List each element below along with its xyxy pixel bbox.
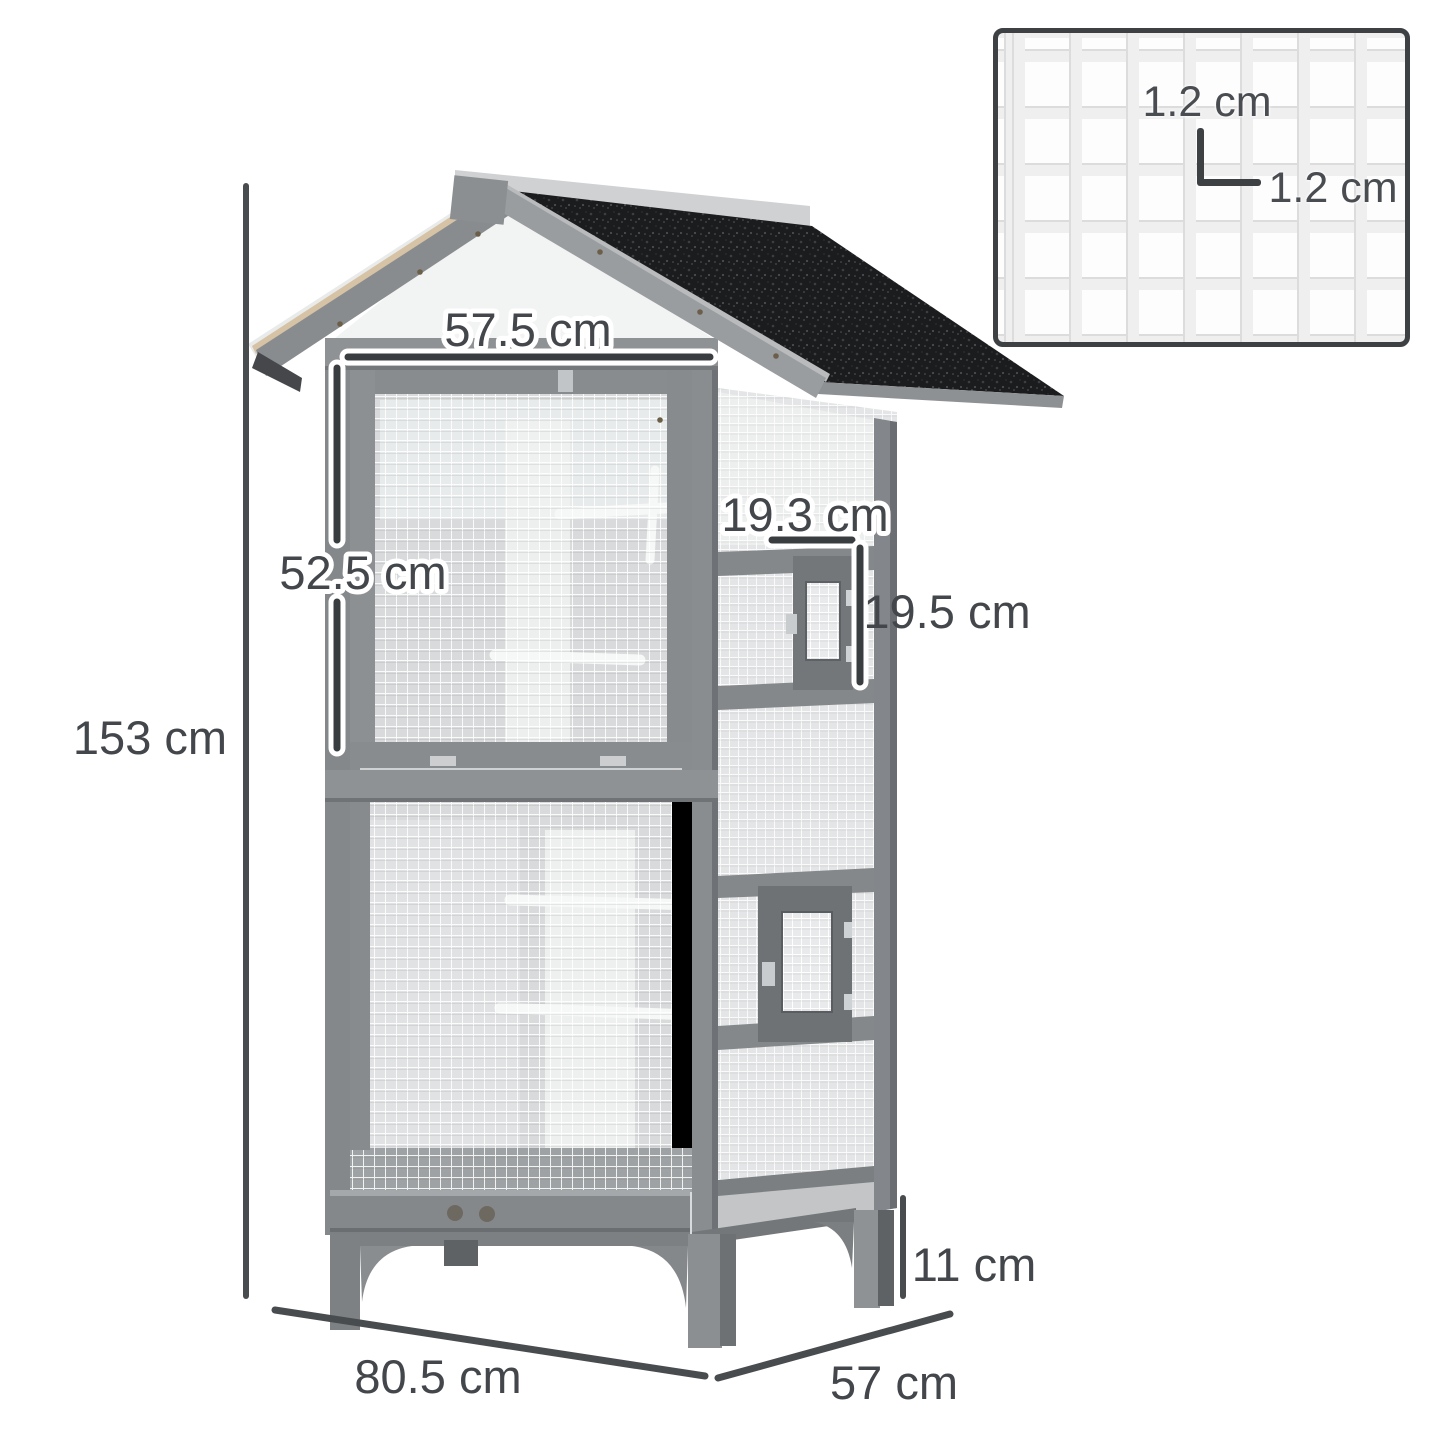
dim-label-side-door-height: 19.5 cm [863,585,1030,638]
dim-label-front-door-height: 52.5 cm [279,546,446,599]
roof-peak-block [450,175,508,224]
leg-back-right [854,1210,880,1308]
tray-top-edge [330,1190,690,1196]
tray-knob [479,1206,495,1222]
mesh-cell-height-tick [1197,128,1204,184]
top-rail-shadow [325,366,718,370]
lower-left-stile [350,802,370,1150]
leg-back-right-side [878,1210,894,1306]
product-dimension-diagram: 57.5 cm 52.5 cm 19.3 cm 19.5 cm 153 cm 1… [0,0,1445,1445]
middle-rail-shadow [325,798,718,802]
door-latch [786,614,797,634]
side-door-lower [758,886,852,1042]
pullout-tray-front [330,1190,690,1232]
dim-label-ground-clearance: 11 cm [912,1238,1037,1291]
mesh-cell-width-label: 1.2 cm [1248,167,1418,210]
mesh-detail-inset: 1.2 cm 1.2 cm [993,28,1410,347]
dim-label-base-depth: 57 cm [830,1356,958,1409]
tray-bottom-edge [330,1228,690,1232]
door-hinge [844,922,852,938]
back-corner-post-shadow [890,421,897,1209]
corbel-back [814,1222,854,1268]
dim-label-side-door-width: 19.3 cm [721,488,888,541]
middle-rail [325,770,718,802]
door-hinge [430,756,456,766]
dim-label-total-height: 153 cm [73,711,227,764]
tray-knob [447,1205,463,1221]
corbel-right [632,1246,688,1308]
mesh-cell-height-label: 1.2 cm [1122,81,1292,124]
front-panel [325,338,718,1235]
side-door-upper [786,556,854,690]
dim-label-base-width: 80.5 cm [354,1350,521,1403]
door-hinge [844,994,852,1010]
front-apron [330,1232,690,1246]
door-hinge [600,756,626,766]
door-latch [762,962,775,986]
dim-label-top-front-width: 57.5 cm [444,303,611,356]
corbel-left [360,1246,412,1302]
lower-right-stile [672,802,692,1148]
leg-front-right-side [720,1234,736,1346]
center-support [444,1240,478,1266]
leg-front-right [688,1234,722,1348]
